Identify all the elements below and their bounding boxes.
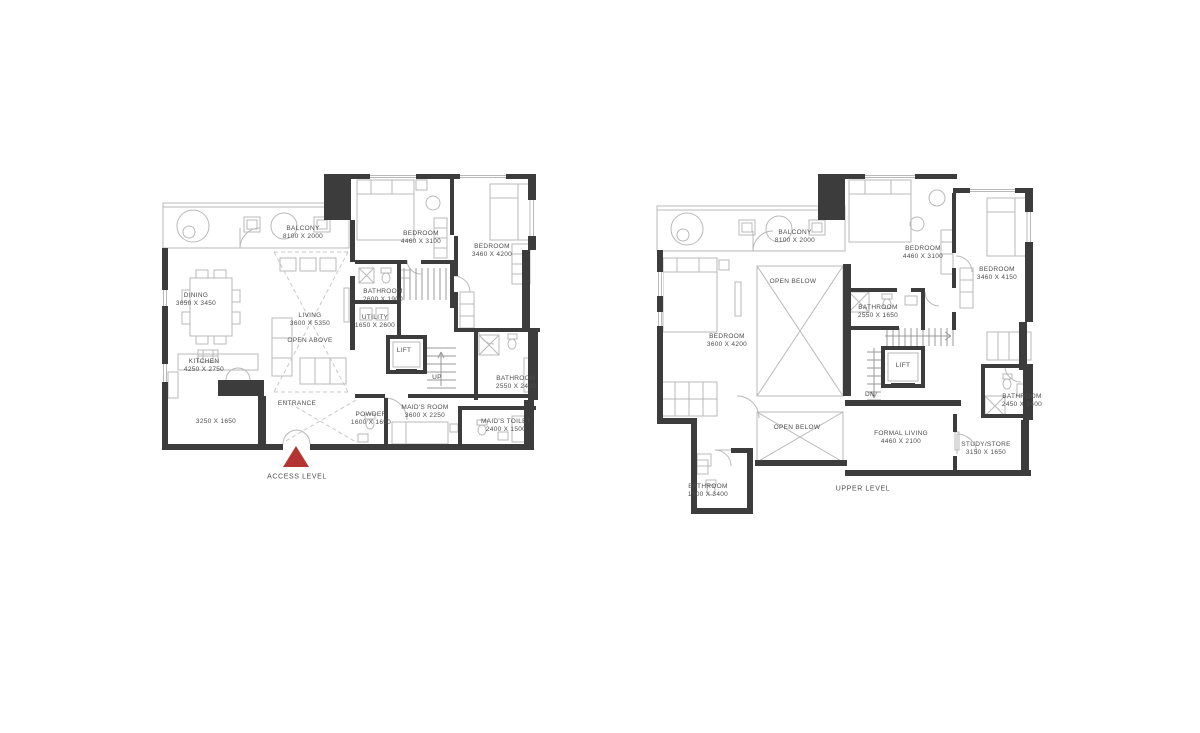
room-label-open-below-2: OPEN BELOW [774,424,821,432]
room-label-bedroom-right-b: BEDROOM3460 X 4150 [977,266,1017,282]
room-label-maids-room: MAID'S ROOM3600 X 2250 [401,404,448,420]
stairs-dn-label: DN [865,391,875,399]
room-label-bathroom2-a: BATHROOM2550 X 2400 [496,375,536,391]
room-label-store: 3250 X 1650 [196,418,236,426]
room-label-bathroom-mid-b: BATHROOM2550 X 1650 [858,304,898,320]
access-level-caption: ACCESS LEVEL [267,474,327,481]
room-label-maids-toilet: MAID'S TOILET2400 X 1500 [481,418,531,434]
room-label-utility: UTILITY1650 X 2600 [355,314,395,330]
room-label-bathroom-right-b: BATHROOM2450 X 2400 [1002,393,1042,409]
room-label-kitchen: KITCHEN4250 X 2750 [184,358,224,374]
room-label-bathroom1-a: BATHROOM2600 X 1900 [363,288,403,304]
room-label-lift-a: LIFT [397,347,412,355]
room-label-open-below-1: OPEN BELOW [770,278,817,286]
room-label-study-store: STUDY/STORE3150 X 1650 [961,441,1010,457]
room-label-bedroom2-a: BEDROOM3460 X 4200 [472,243,512,259]
room-label-bedroom1-a: BEDROOM4460 X 3100 [401,230,441,246]
room-label-bathroom-bottom-b: BATHROOM1900 X 3400 [688,483,728,499]
stairs-up-label: UP [432,374,442,382]
room-label-lift-b: LIFT [896,362,911,370]
room-label-living: LIVING3600 X 5350 [290,312,330,328]
upper-level-caption: UPPER LEVEL [836,486,890,493]
floorplan-sheet: BALCONY8100 X 2000 DINING3650 X 3450 LIV… [0,0,1200,733]
access-level-marker [283,446,309,467]
room-label-dining: DINING3650 X 3450 [176,292,216,308]
room-label-bedroom-left-b: BEDROOM3600 X 4200 [707,333,747,349]
room-label-powder: POWDER1600 X 1650 [351,411,391,427]
room-label-entrance: ENTRANCE [278,400,316,408]
room-label-balcony-b: BALCONY8100 X 2000 [775,229,815,245]
room-label-formal-living: FORMAL LIVING4460 X 2100 [874,430,928,446]
room-label-bedroom-mid-b: BEDROOM4460 X 3100 [903,245,943,261]
room-label-open-above: OPEN ABOVE [287,337,332,345]
room-label-balcony-a: BALCONY8100 X 2000 [283,225,323,241]
